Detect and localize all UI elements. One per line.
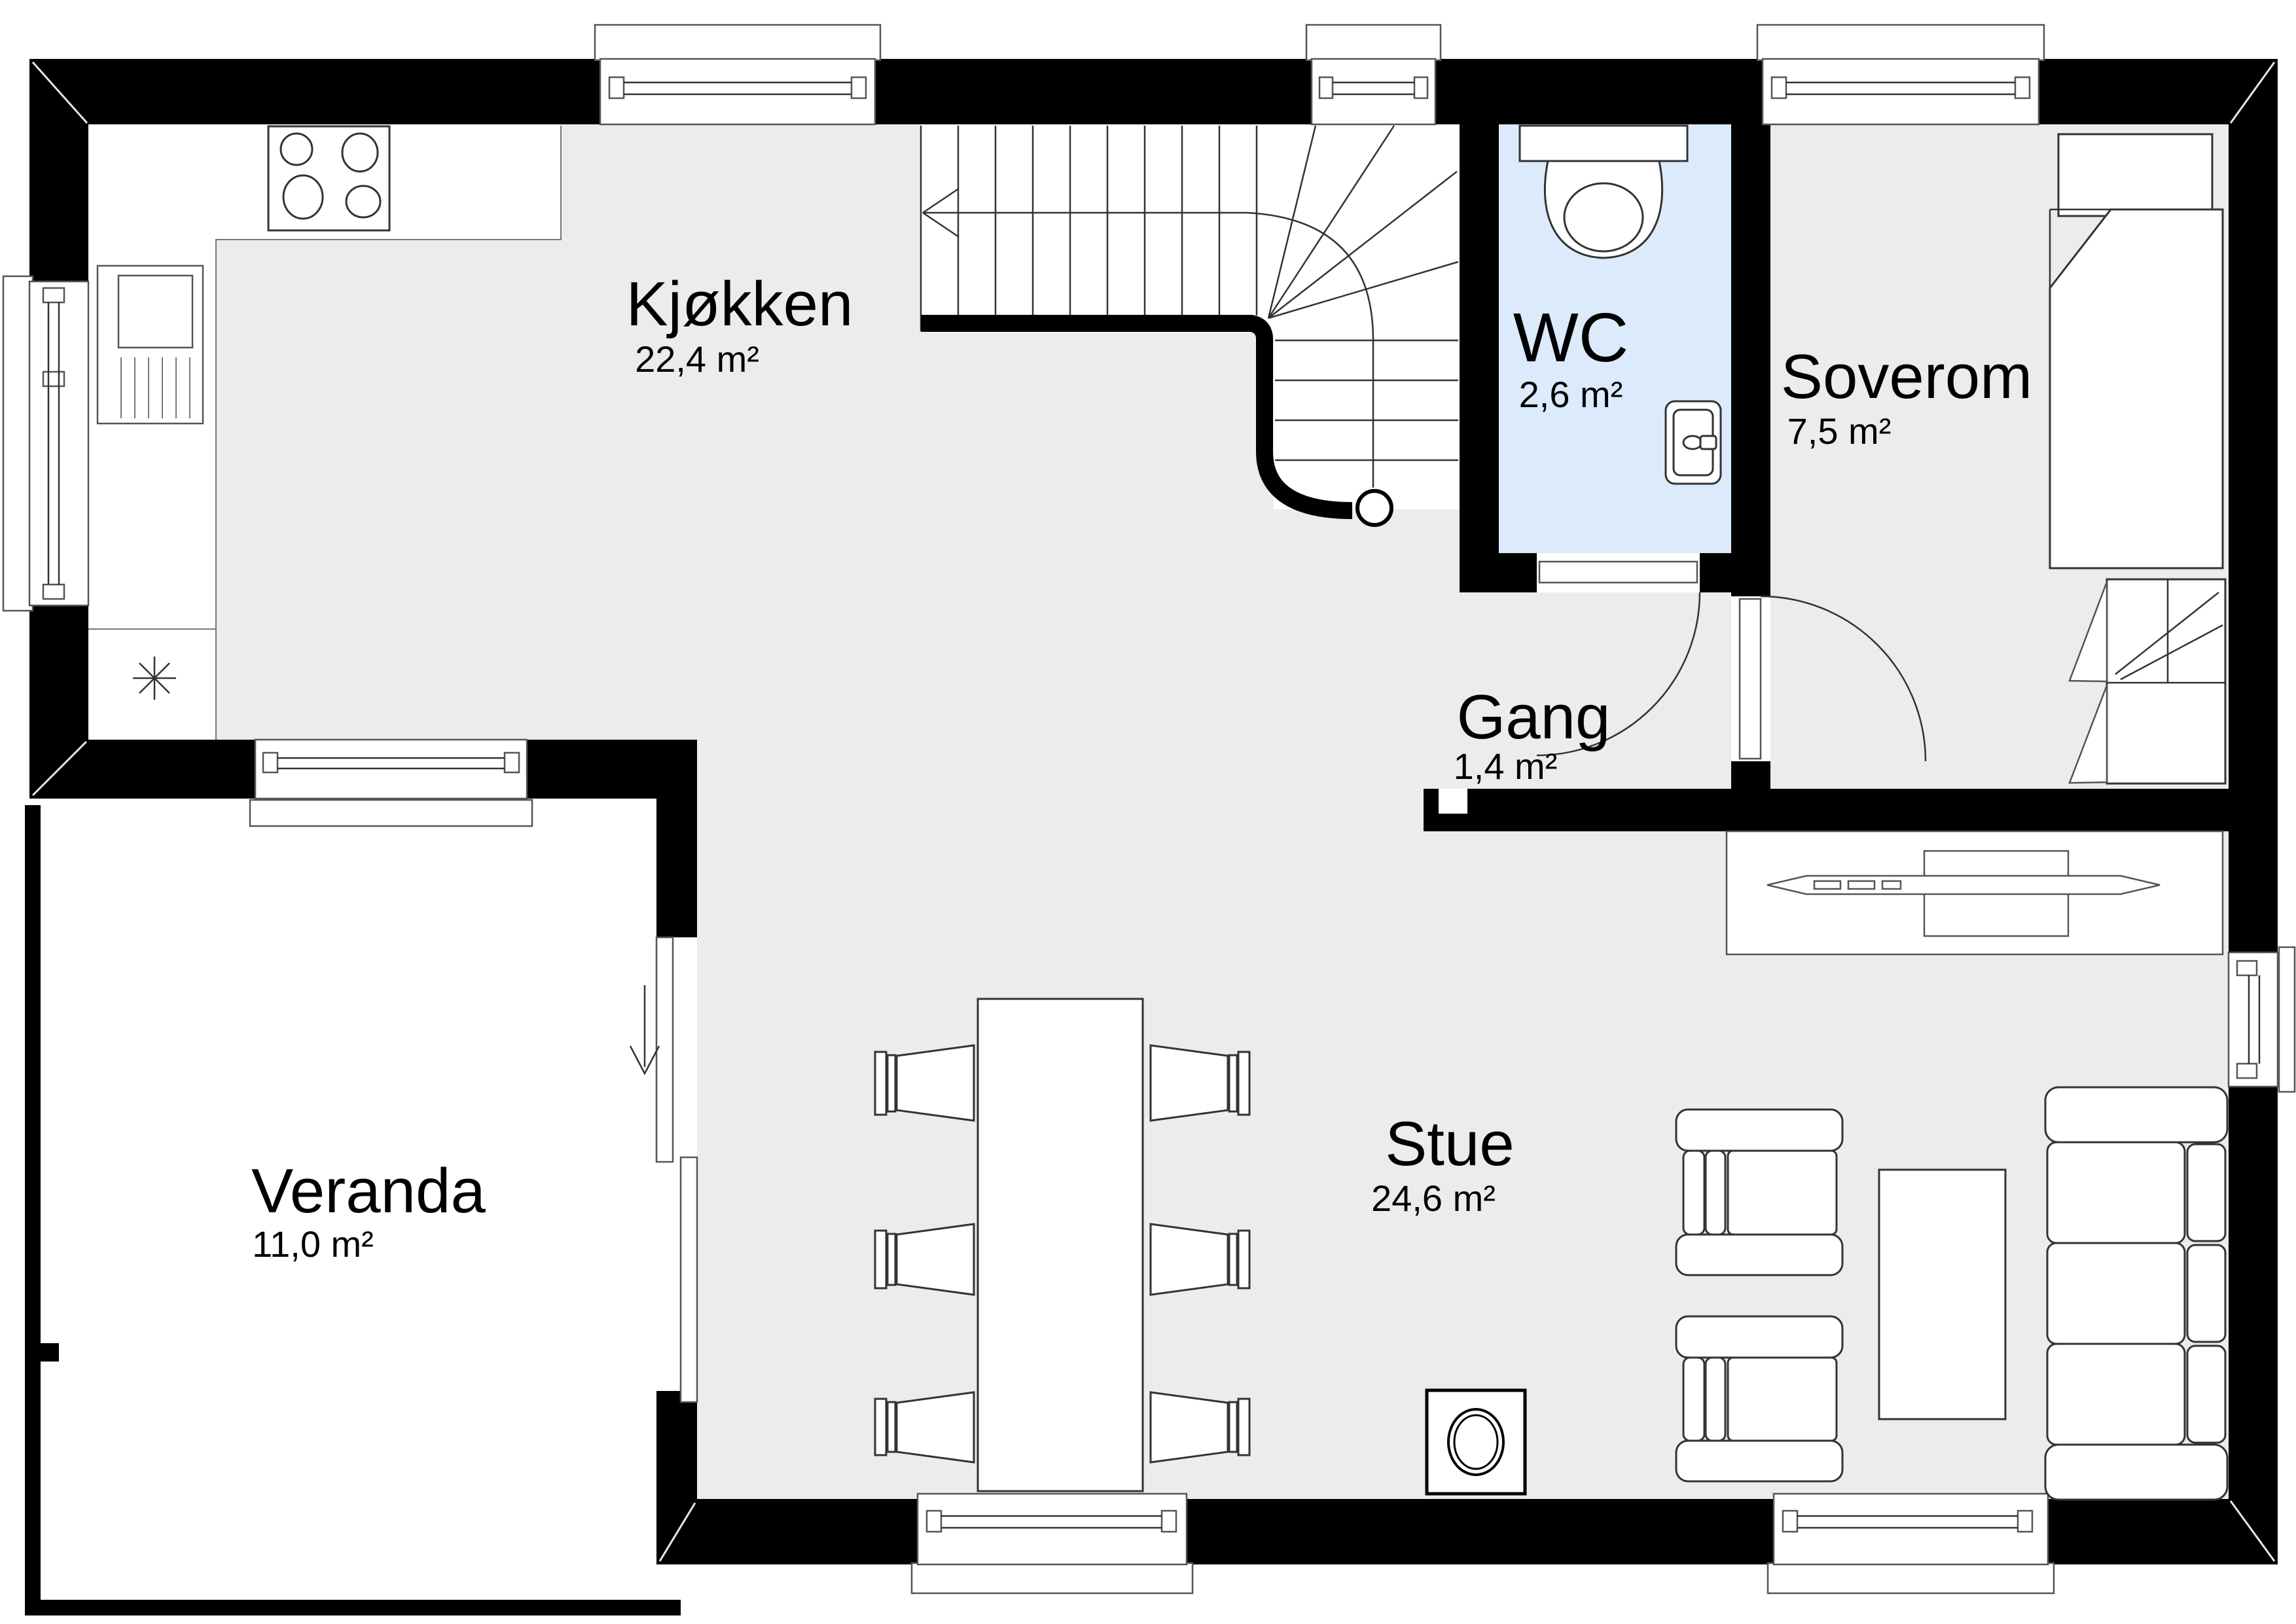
- area-gang: 1,4 m²: [1454, 746, 1558, 787]
- chair: [875, 1392, 974, 1462]
- area-soverom: 7,5 m²: [1787, 410, 1892, 452]
- bed-pillow: [2058, 134, 2212, 216]
- stair-newel-post: [1357, 491, 1391, 525]
- window-living-south: [1768, 1494, 2054, 1593]
- wc-sink: [1666, 401, 1721, 484]
- window-kitchen-north: [595, 25, 880, 124]
- window-stairs-north: [1306, 25, 1441, 124]
- chair: [875, 1224, 974, 1295]
- sofa: [2045, 1087, 2227, 1500]
- cooktop: [268, 126, 389, 230]
- bed-duvet: [2050, 209, 2223, 568]
- chair: [875, 1045, 974, 1121]
- chair: [1151, 1224, 1249, 1295]
- chair: [1151, 1045, 1249, 1121]
- chair: [1151, 1392, 1249, 1462]
- window-kitchen-south: [250, 740, 532, 826]
- sliding-door: [630, 937, 697, 1402]
- label-kjokken: Kjøkken: [626, 269, 853, 339]
- label-soverom: Soverom: [1781, 342, 2032, 412]
- window-dining-south: [912, 1494, 1193, 1593]
- coffee-table: [1879, 1170, 2005, 1419]
- window-living-east: [2229, 947, 2295, 1092]
- bed: [2050, 134, 2223, 568]
- label-stue: Stue: [1385, 1109, 1514, 1179]
- area-wc: 2,6 m²: [1519, 374, 1623, 415]
- window-kitchen-west: [3, 276, 88, 611]
- label-veranda: Veranda: [251, 1156, 486, 1226]
- window-bedroom-north: [1757, 25, 2044, 124]
- label-gang: Gang: [1457, 682, 1611, 752]
- dining-table: [978, 999, 1143, 1491]
- area-veranda: 11,0 m²: [252, 1223, 374, 1265]
- area-kjokken: 22,4 m²: [635, 338, 759, 380]
- refrigerator-cabinet: [98, 266, 203, 424]
- armchair: [1676, 1110, 1842, 1275]
- wood-stove: [1427, 1390, 1525, 1494]
- floor-plan: Kjøkken 22,4 m² WC 2,6 m² Soverom 7,5 m²…: [0, 0, 2296, 1624]
- tv-bench: [1727, 831, 2223, 954]
- label-wc: WC: [1513, 299, 1629, 376]
- armchair: [1676, 1316, 1842, 1481]
- area-stue: 24,6 m²: [1371, 1178, 1496, 1219]
